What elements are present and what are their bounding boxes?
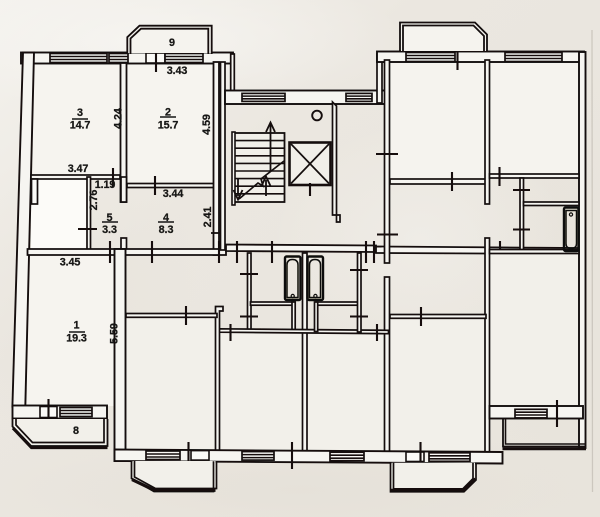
svg-text:9: 9 (169, 37, 175, 49)
svg-text:3.47: 3.47 (68, 163, 89, 175)
svg-text:1: 1 (74, 320, 80, 332)
svg-text:14.7: 14.7 (70, 119, 91, 131)
svg-text:8: 8 (73, 425, 79, 437)
svg-text:8.3: 8.3 (159, 224, 174, 236)
svg-text:1.19: 1.19 (95, 179, 116, 191)
svg-text:2.41: 2.41 (202, 207, 214, 228)
svg-text:5.59: 5.59 (109, 323, 121, 344)
svg-text:4.24: 4.24 (113, 108, 125, 129)
svg-text:15.7: 15.7 (158, 119, 179, 131)
svg-text:4.59: 4.59 (201, 114, 213, 135)
svg-text:3: 3 (77, 107, 83, 119)
svg-text:3.44: 3.44 (163, 188, 184, 200)
svg-text:19.3: 19.3 (66, 332, 87, 344)
svg-text:2.76: 2.76 (88, 190, 100, 211)
svg-text:3.45: 3.45 (60, 257, 81, 269)
svg-text:3.3: 3.3 (102, 224, 117, 236)
svg-text:3.43: 3.43 (167, 65, 188, 77)
